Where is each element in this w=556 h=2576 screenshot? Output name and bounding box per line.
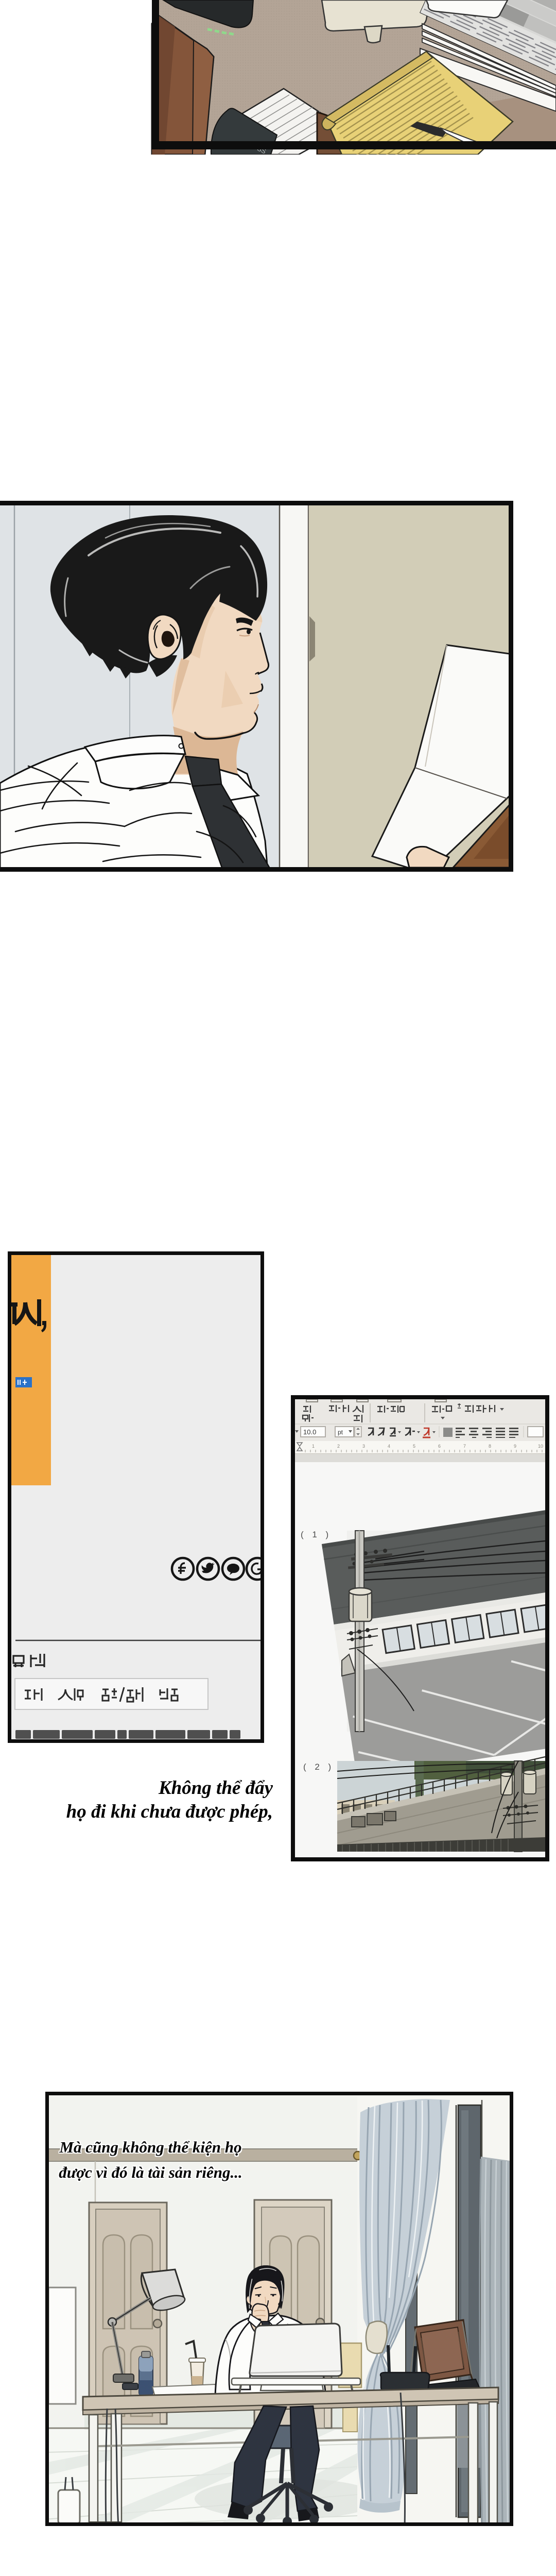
svg-text:( 2 ): ( 2 ): [303, 1762, 334, 1772]
svg-text:9: 9: [514, 1444, 516, 1449]
svg-text:6: 6: [438, 1444, 441, 1449]
svg-text:pt: pt: [338, 1429, 343, 1436]
svg-text:1: 1: [312, 1444, 315, 1449]
svg-text:4: 4: [388, 1444, 390, 1449]
svg-text:10.0: 10.0: [303, 1428, 316, 1436]
svg-text:5: 5: [413, 1444, 415, 1449]
svg-text:8: 8: [489, 1444, 491, 1449]
svg-text:3: 3: [362, 1444, 365, 1449]
svg-text:7: 7: [463, 1444, 466, 1449]
svg-text:10: 10: [538, 1444, 543, 1449]
svg-text:( 1 ): ( 1 ): [301, 1530, 332, 1539]
svg-text:2: 2: [337, 1444, 340, 1449]
